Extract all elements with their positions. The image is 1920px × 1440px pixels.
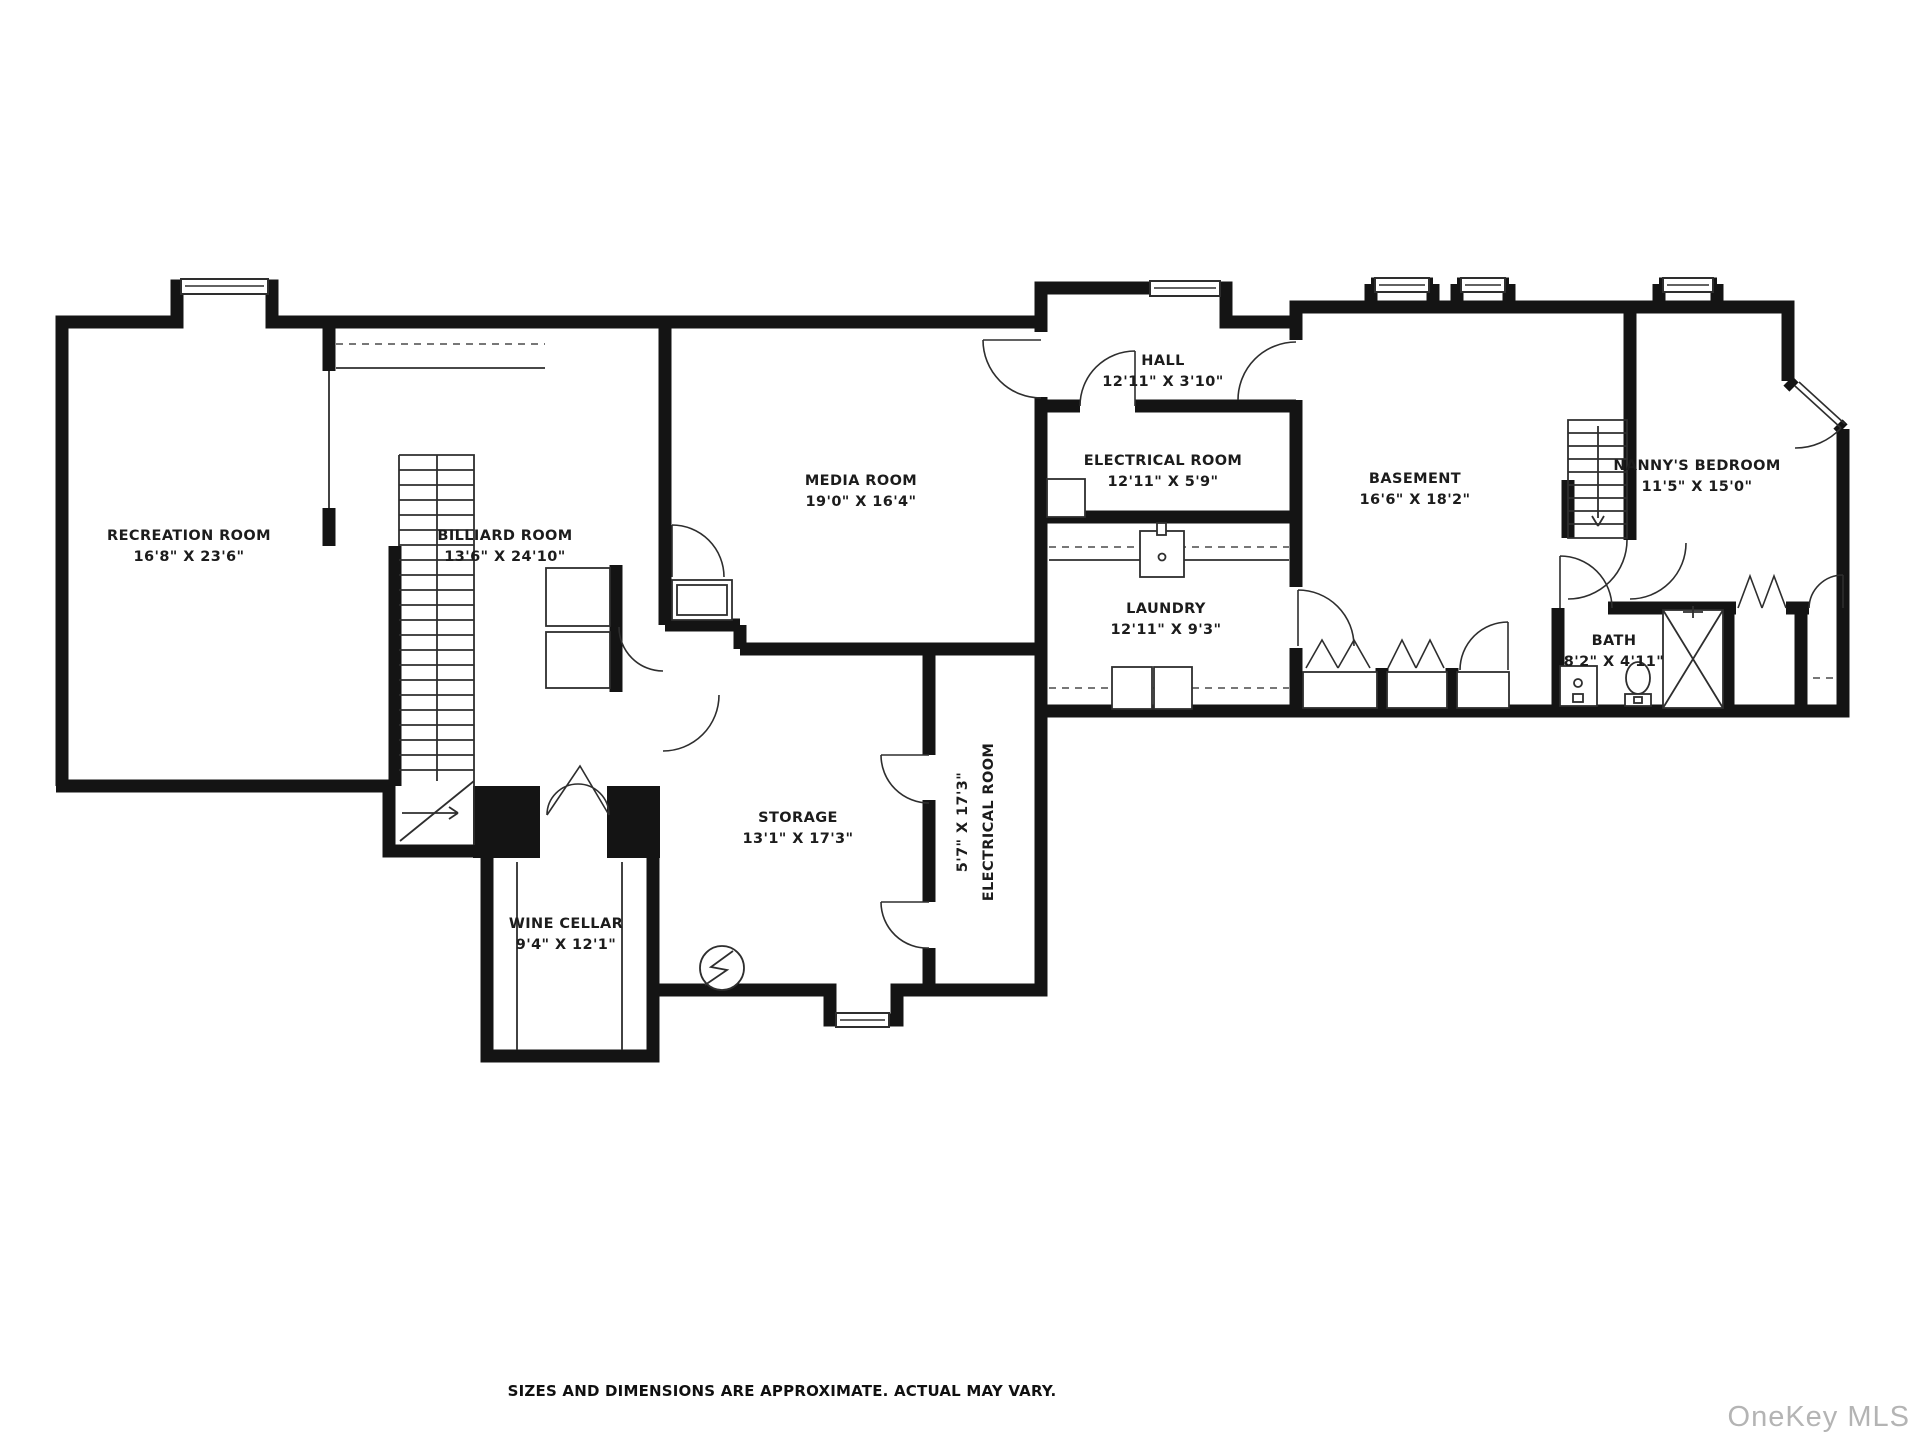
stair-cut-line bbox=[400, 781, 474, 841]
shower bbox=[1663, 606, 1723, 708]
disclaimer-text: SIZES AND DIMENSIONS ARE APPROXIMATE. AC… bbox=[508, 1382, 1057, 1400]
wall-blocks bbox=[473, 786, 660, 858]
room-label-billiard-room: 13'6" X 24'10" bbox=[444, 549, 566, 565]
washer-dryer bbox=[1112, 667, 1192, 709]
room-label-storage: STORAGE bbox=[758, 810, 838, 826]
window-basement-2 bbox=[1461, 278, 1505, 292]
door-billiard-closet bbox=[619, 627, 663, 671]
door-passage-storage bbox=[663, 695, 719, 751]
wine-racks bbox=[517, 862, 622, 1050]
bifold-basement-closet-2 bbox=[1388, 640, 1444, 668]
door-stair-hall bbox=[1568, 540, 1627, 599]
room-label-recreation-room: RECREATION ROOM bbox=[107, 528, 271, 544]
room-label-bath: BATH bbox=[1592, 633, 1637, 649]
room-label-recreation-room: 16'8" X 23'6" bbox=[134, 549, 245, 565]
room-label-nannys-bedroom: NANNY'S BEDROOM bbox=[1613, 458, 1780, 474]
room-label-basement: BASEMENT bbox=[1369, 471, 1461, 487]
basement-closet-1 bbox=[1303, 672, 1377, 708]
room-label-laundry: LAUNDRY bbox=[1126, 601, 1206, 617]
floor-plan-drawing: RECREATION ROOM16'8" X 23'6"BILLIARD ROO… bbox=[0, 0, 1920, 1440]
room-label-nannys-bedroom: 11'5" X 15'0" bbox=[1642, 479, 1753, 495]
door-bath-entry bbox=[1560, 556, 1612, 608]
bifold-nanny-closet bbox=[1738, 576, 1786, 608]
staircase-basement bbox=[1568, 420, 1627, 538]
window-recreation bbox=[181, 279, 268, 294]
watermark-logo: OneKey MLS bbox=[1728, 1401, 1910, 1434]
room-label-hall: 12'11" X 3'10" bbox=[1102, 374, 1224, 390]
laundry-sink bbox=[1140, 523, 1184, 577]
closet-box-1 bbox=[546, 568, 610, 626]
staircase-main bbox=[399, 455, 474, 845]
room-label-billiard-room: BILLIARD ROOM bbox=[437, 528, 572, 544]
door-media-hall bbox=[983, 340, 1041, 398]
room-label-electrical-room-lower: ELECTRICAL ROOM bbox=[981, 743, 997, 902]
closet-box-2 bbox=[546, 632, 610, 688]
room-label-bath: 8'2" X 4'11" bbox=[1564, 654, 1665, 670]
basement-closet-2 bbox=[1387, 672, 1447, 708]
window-nanny bbox=[1663, 278, 1713, 292]
room-label-laundry: 12'11" X 9'3" bbox=[1111, 622, 1222, 638]
bifold-basement-closet-1 bbox=[1306, 640, 1370, 668]
bath-sink bbox=[1560, 666, 1597, 706]
room-label-media-room: 19'0" X 16'4" bbox=[806, 494, 917, 510]
media-cabinet bbox=[672, 580, 732, 620]
electrical-panel bbox=[1047, 479, 1085, 517]
door-media-storage bbox=[672, 525, 724, 577]
room-label-electrical-room-upper: 12'11" X 5'9" bbox=[1108, 474, 1219, 490]
room-label-media-room: MEDIA ROOM bbox=[805, 473, 917, 489]
door-storage-electrical-1 bbox=[881, 755, 929, 803]
door-basement-closet-3 bbox=[1460, 622, 1508, 670]
door-nanny-entry bbox=[1630, 543, 1686, 599]
window-basement-1 bbox=[1375, 278, 1429, 292]
basement-closet-3 bbox=[1457, 672, 1509, 708]
window-storage bbox=[836, 1013, 889, 1027]
door-storage-electrical-2 bbox=[881, 902, 929, 948]
room-label-wine-cellar: 9'4" X 12'1" bbox=[516, 937, 617, 953]
door-laundry-basement bbox=[1298, 590, 1354, 646]
room-label-electrical-room-lower: 5'7" X 17'3" bbox=[955, 772, 971, 873]
room-label-hall: HALL bbox=[1141, 353, 1184, 369]
floor-plan-page: RECREATION ROOM16'8" X 23'6"BILLIARD ROO… bbox=[0, 0, 1920, 1440]
room-label-wine-cellar: WINE CELLAR bbox=[509, 916, 623, 932]
electrical-symbol bbox=[700, 946, 744, 990]
room-label-storage: 13'1" X 17'3" bbox=[743, 831, 854, 847]
room-label-electrical-room-upper: ELECTRICAL ROOM bbox=[1084, 453, 1243, 469]
room-label-basement: 16'6" X 18'2" bbox=[1360, 492, 1471, 508]
door-wine-cellar bbox=[547, 766, 609, 815]
door-hall-basement bbox=[1238, 342, 1296, 400]
window-hall bbox=[1150, 281, 1220, 296]
